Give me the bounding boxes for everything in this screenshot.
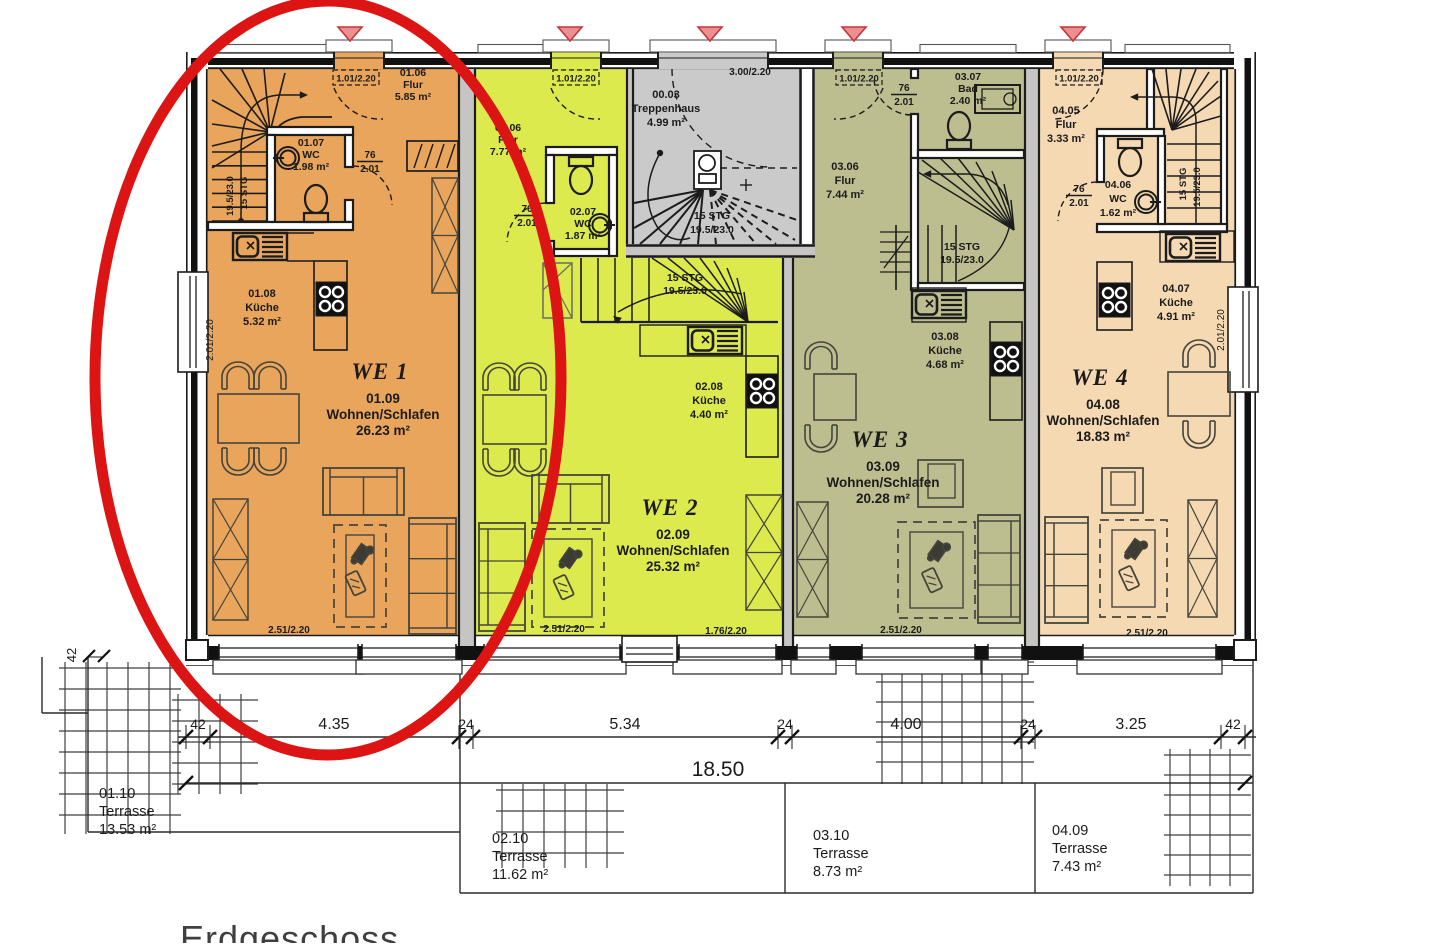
svg-text:13.53 m²: 13.53 m²: [99, 822, 156, 838]
svg-text:7.43 m²: 7.43 m²: [1052, 859, 1101, 875]
svg-text:01.10: 01.10: [99, 786, 135, 802]
svg-text:4.91 m²: 4.91 m²: [1157, 311, 1195, 323]
svg-text:02.10: 02.10: [492, 831, 528, 847]
svg-text:2.51/2.20: 2.51/2.20: [1126, 628, 1168, 639]
svg-text:01.06: 01.06: [400, 67, 426, 79]
svg-text:Terrasse: Terrasse: [492, 849, 548, 865]
svg-text:3.00/2.20: 3.00/2.20: [729, 67, 771, 78]
svg-text:01.07: 01.07: [298, 137, 324, 149]
svg-text:25.32 m²: 25.32 m²: [646, 559, 701, 574]
svg-text:4.68 m²: 4.68 m²: [926, 359, 964, 371]
svg-text:1.01/2.20: 1.01/2.20: [556, 74, 596, 85]
svg-text:18.50: 18.50: [692, 758, 745, 781]
svg-text:Küche: Küche: [1159, 297, 1193, 309]
svg-text:Wohnen/Schlafen: Wohnen/Schlafen: [826, 475, 939, 490]
svg-text:1.01/2.20: 1.01/2.20: [1059, 74, 1099, 85]
svg-text:2.01/2.20: 2.01/2.20: [205, 319, 216, 361]
svg-text:1.01/2.20: 1.01/2.20: [839, 74, 879, 85]
svg-text:8.73 m²: 8.73 m²: [813, 864, 862, 880]
svg-text:Küche: Küche: [928, 345, 962, 357]
svg-text:2.40 m²: 2.40 m²: [950, 95, 987, 107]
svg-text:11.62 m²: 11.62 m²: [492, 867, 548, 883]
svg-text:1.98 m²: 1.98 m²: [293, 161, 330, 173]
svg-text:03.09: 03.09: [866, 459, 900, 474]
svg-text:Wohnen/Schlafen: Wohnen/Schlafen: [1046, 413, 1159, 428]
svg-text:15 STG: 15 STG: [944, 241, 980, 253]
svg-text:03.10: 03.10: [813, 828, 849, 844]
svg-text:04.08: 04.08: [1086, 397, 1120, 412]
svg-text:04.09: 04.09: [1052, 823, 1088, 839]
svg-text:76: 76: [898, 83, 910, 94]
svg-text:03.08: 03.08: [931, 331, 959, 343]
svg-text:24: 24: [1020, 716, 1036, 732]
svg-text:Wohnen/Schlafen: Wohnen/Schlafen: [326, 407, 439, 422]
svg-text:1.87 m²: 1.87 m²: [565, 230, 602, 242]
svg-text:42: 42: [64, 648, 79, 662]
svg-text:5.85 m²: 5.85 m²: [395, 91, 432, 103]
svg-text:Treppenhaus: Treppenhaus: [632, 103, 700, 115]
svg-text:26.23 m²: 26.23 m²: [356, 423, 411, 438]
svg-text:7.44 m²: 7.44 m²: [826, 189, 864, 201]
svg-text:2.01: 2.01: [1069, 198, 1089, 209]
svg-text:WE 3: WE 3: [851, 427, 908, 452]
svg-text:02.09: 02.09: [656, 527, 690, 542]
svg-text:19.5/23.0: 19.5/23.0: [690, 224, 734, 236]
svg-text:19.5/23.0: 19.5/23.0: [663, 285, 707, 297]
svg-text:WE 2: WE 2: [641, 495, 698, 520]
svg-text:42: 42: [1225, 716, 1241, 732]
svg-text:18.83 m²: 18.83 m²: [1076, 429, 1131, 444]
svg-text:4.40 m²: 4.40 m²: [690, 409, 728, 421]
svg-text:01.08: 01.08: [248, 288, 276, 300]
svg-text:15 STG: 15 STG: [667, 272, 703, 284]
svg-text:1.62 m²: 1.62 m²: [1100, 207, 1137, 219]
svg-text:76: 76: [364, 150, 376, 161]
svg-text:3.33 m²: 3.33 m²: [1047, 133, 1085, 145]
svg-text:Flur: Flur: [1056, 119, 1077, 131]
svg-text:1.01/2.20: 1.01/2.20: [336, 74, 376, 85]
svg-text:42: 42: [190, 716, 206, 732]
svg-text:19.5/23.0: 19.5/23.0: [225, 176, 236, 216]
svg-text:Terrasse: Terrasse: [1052, 841, 1108, 857]
svg-text:2.01: 2.01: [360, 164, 380, 175]
svg-text:Flur: Flur: [835, 175, 856, 187]
svg-text:03.07: 03.07: [955, 71, 981, 83]
svg-text:24: 24: [777, 716, 793, 732]
svg-text:Küche: Küche: [245, 302, 279, 314]
svg-text:WE 4: WE 4: [1071, 365, 1128, 390]
svg-text:WC: WC: [302, 149, 320, 161]
svg-text:15 STG: 15 STG: [239, 177, 250, 210]
svg-text:03.06: 03.06: [831, 161, 859, 173]
svg-text:WC: WC: [574, 218, 592, 230]
svg-text:WE 1: WE 1: [351, 359, 408, 384]
svg-text:19.5/23.0: 19.5/23.0: [1192, 167, 1203, 207]
svg-text:Küche: Küche: [692, 395, 726, 407]
svg-text:5.34: 5.34: [609, 716, 640, 733]
svg-text:02.07: 02.07: [570, 206, 596, 218]
svg-text:24: 24: [458, 716, 474, 732]
svg-text:2.51/2.20: 2.51/2.20: [880, 625, 922, 636]
svg-text:04.06: 04.06: [1105, 179, 1131, 191]
svg-text:20.28 m²: 20.28 m²: [856, 491, 911, 506]
svg-text:3.25: 3.25: [1115, 716, 1146, 733]
svg-text:19.5/23.0: 19.5/23.0: [940, 254, 984, 266]
svg-text:4.35: 4.35: [318, 716, 349, 733]
svg-text:01.09: 01.09: [366, 391, 400, 406]
svg-text:4.99 m²: 4.99 m²: [647, 117, 685, 129]
svg-text:02.08: 02.08: [695, 381, 723, 393]
svg-text:Flur: Flur: [403, 79, 423, 91]
svg-text:Wohnen/Schlafen: Wohnen/Schlafen: [616, 543, 729, 558]
svg-text:04.07: 04.07: [1162, 283, 1190, 295]
svg-text:4.00: 4.00: [890, 716, 921, 733]
svg-text:15 STG: 15 STG: [1178, 168, 1189, 201]
svg-text:2.51/2.20: 2.51/2.20: [543, 624, 585, 635]
svg-text:1.76/2.20: 1.76/2.20: [705, 626, 747, 637]
svg-text:2.51/2.20: 2.51/2.20: [268, 625, 310, 636]
svg-text:Bad: Bad: [958, 83, 978, 95]
svg-text:2.01/2.20: 2.01/2.20: [1216, 309, 1227, 351]
svg-text:Terrasse: Terrasse: [813, 846, 869, 862]
svg-text:04.05: 04.05: [1052, 105, 1080, 117]
svg-text:WC: WC: [1109, 193, 1127, 205]
svg-text:Erdgeschoss: Erdgeschoss: [180, 918, 399, 943]
svg-text:15 STG: 15 STG: [694, 210, 730, 222]
svg-text:Terrasse: Terrasse: [99, 804, 155, 820]
svg-text:2.01: 2.01: [894, 97, 914, 108]
svg-text:5.32 m²: 5.32 m²: [243, 316, 281, 328]
svg-text:76: 76: [1073, 184, 1085, 195]
